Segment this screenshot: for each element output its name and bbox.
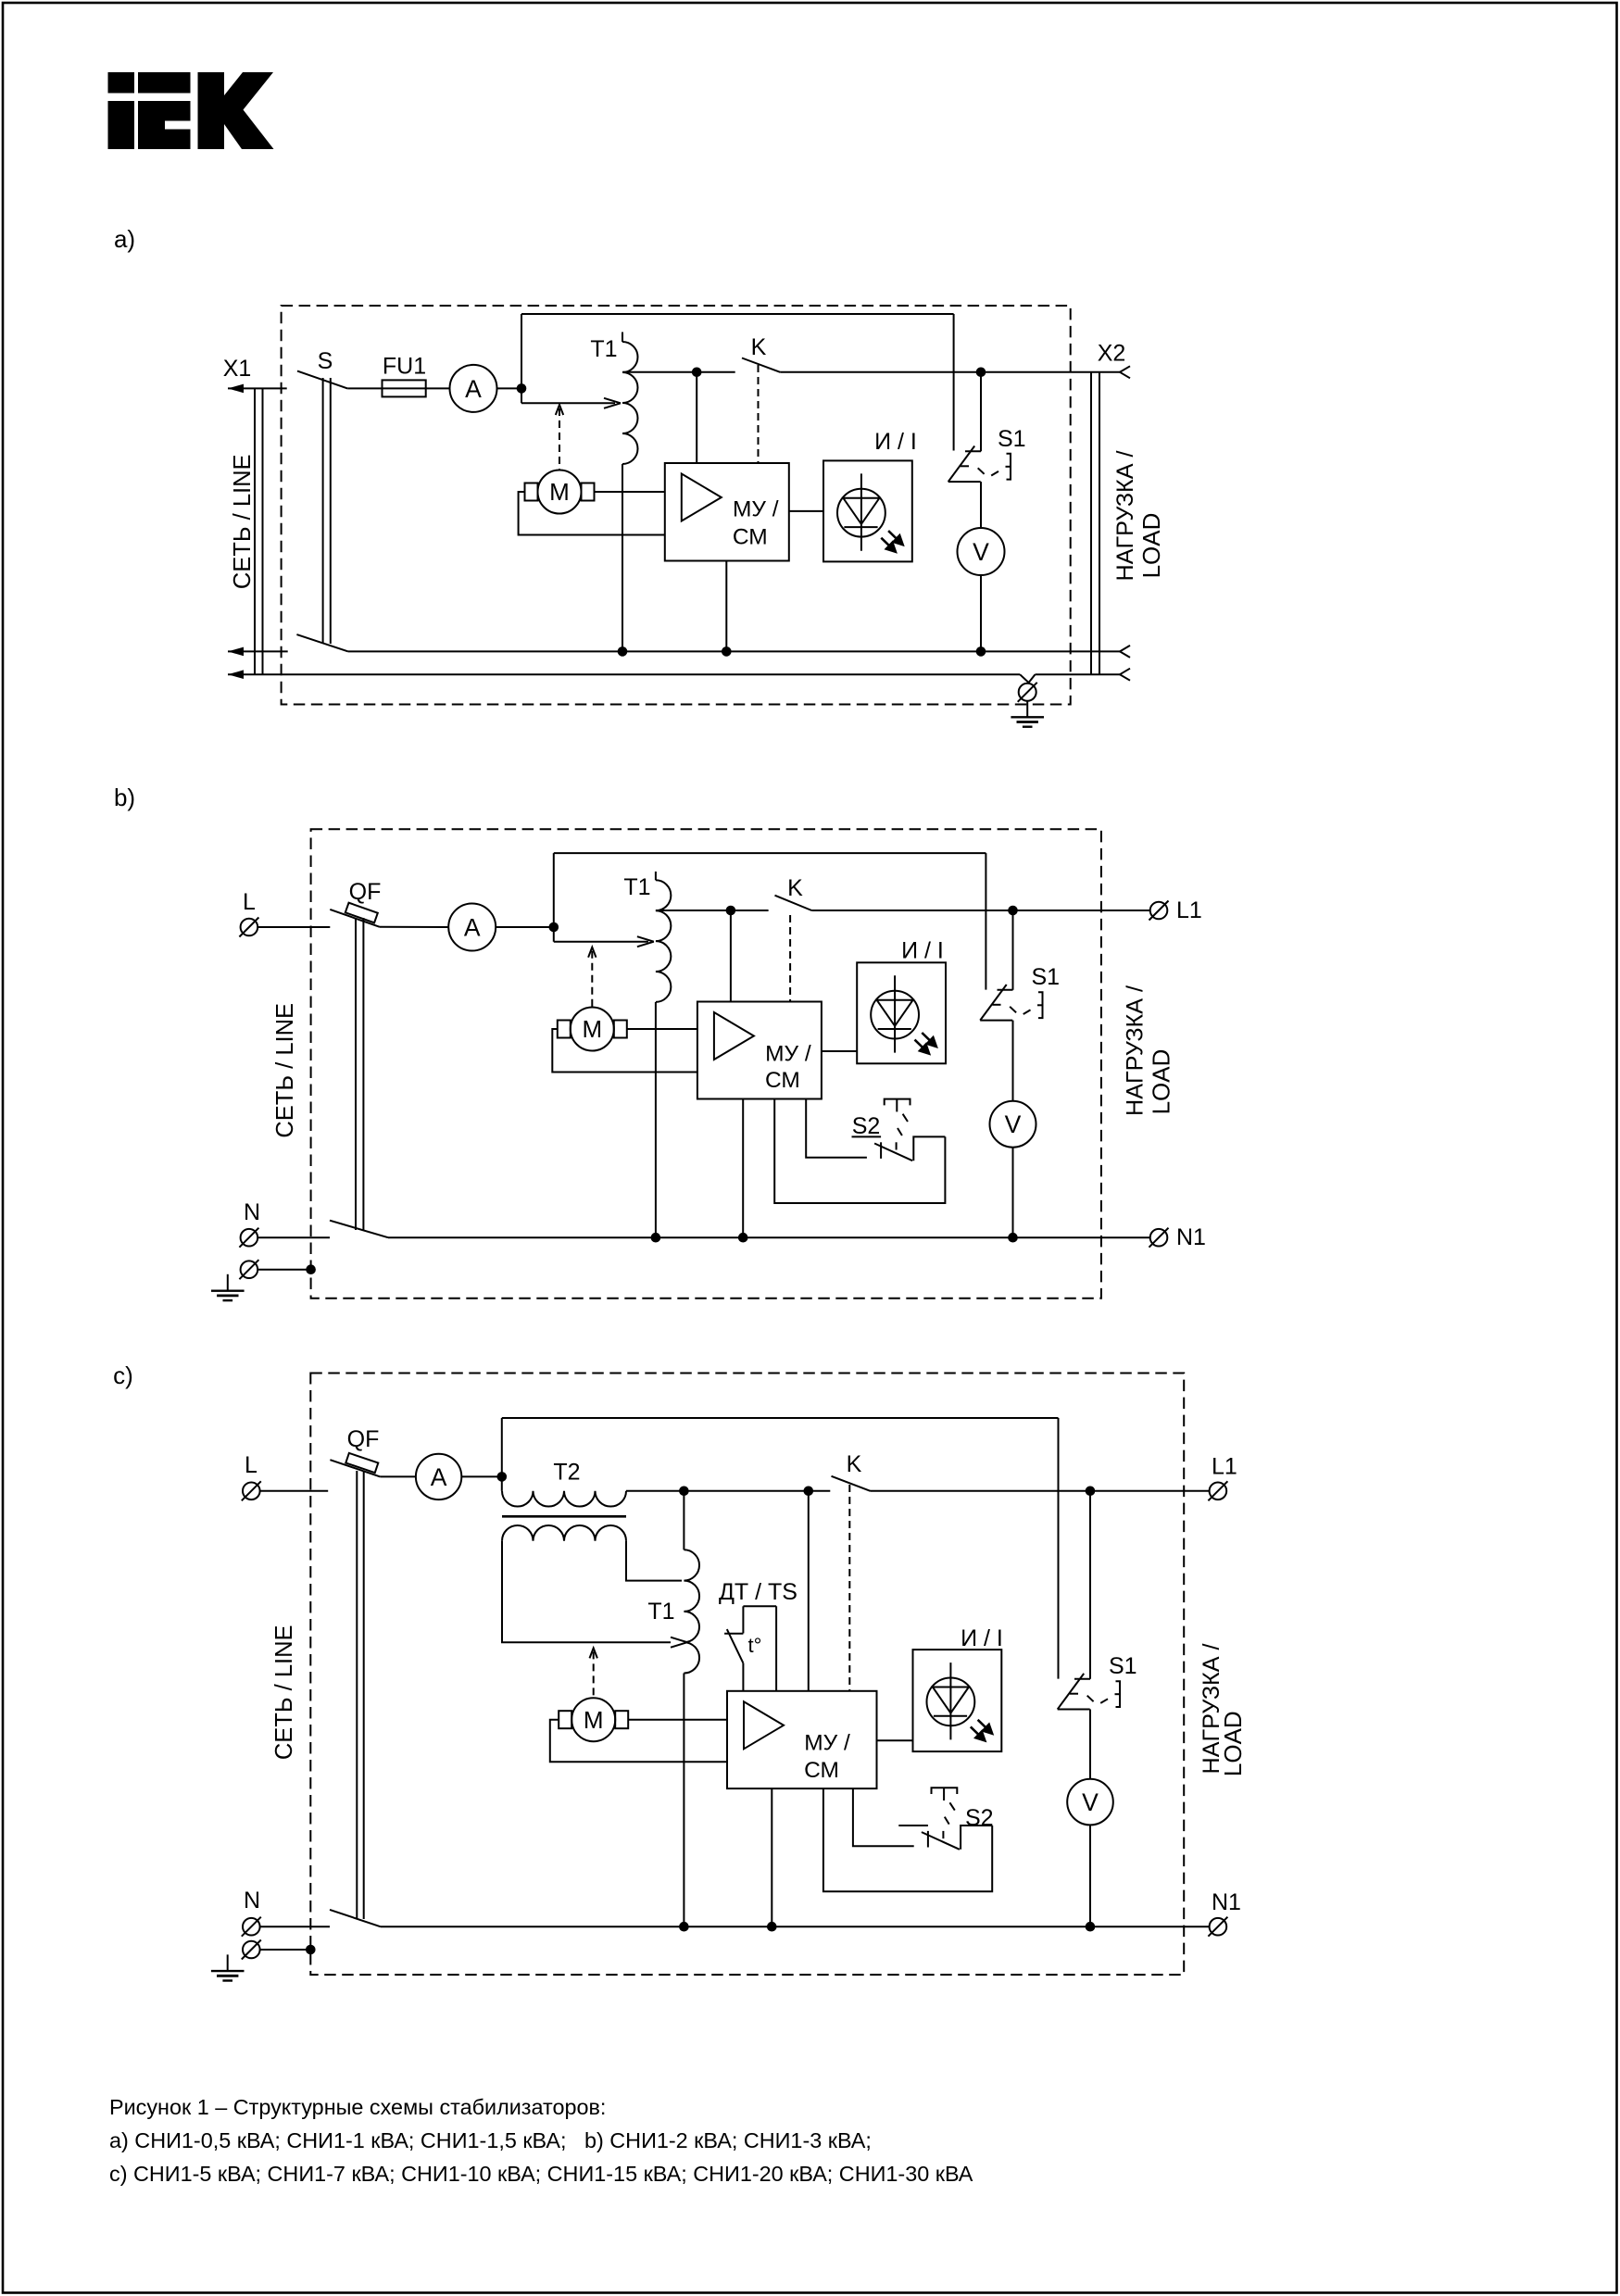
svg-text:МУ /: МУ / — [804, 1730, 850, 1755]
svg-text:X1: X1 — [223, 356, 252, 382]
svg-text:N: N — [244, 1888, 260, 1913]
svg-text:T1: T1 — [647, 1599, 674, 1625]
svg-text:S2: S2 — [965, 1805, 994, 1831]
svg-text:V: V — [973, 538, 989, 566]
svg-text:b): b) — [114, 784, 135, 811]
svg-text:СЕТЬ / LINE: СЕТЬ / LINE — [271, 1625, 297, 1760]
svg-text:L1: L1 — [1176, 897, 1202, 923]
svg-text:K: K — [751, 334, 767, 360]
svg-text:L: L — [245, 1452, 257, 1478]
svg-text:А: А — [431, 1463, 447, 1491]
svg-text:QF: QF — [349, 879, 382, 905]
svg-text:N1: N1 — [1176, 1224, 1206, 1250]
svg-text:СЕТЬ / LINE: СЕТЬ / LINE — [230, 454, 256, 589]
svg-text:М: М — [582, 1015, 602, 1043]
svg-text:c): c) — [113, 1361, 133, 1389]
svg-text:И / I: И / I — [874, 429, 917, 455]
svg-text:T1: T1 — [623, 874, 650, 900]
svg-text:СЕТЬ / LINE: СЕТЬ / LINE — [272, 1003, 298, 1138]
svg-text:И / I: И / I — [961, 1625, 1003, 1651]
svg-text:S1: S1 — [1032, 964, 1061, 990]
svg-text:K: K — [787, 875, 803, 901]
svg-text:М: М — [584, 1706, 604, 1734]
svg-text:T1: T1 — [590, 336, 617, 362]
svg-text:QF: QF — [347, 1426, 380, 1452]
svg-text:L: L — [243, 889, 256, 915]
svg-text:t°: t° — [748, 1634, 762, 1657]
svg-text:СМ: СМ — [733, 525, 768, 550]
svg-text:А: А — [464, 913, 481, 941]
svg-text:S1: S1 — [998, 426, 1026, 452]
svg-text:М: М — [549, 478, 570, 506]
svg-text:НАГРУЗКА /: НАГРУЗКА / — [1112, 450, 1138, 581]
svg-text:А: А — [465, 375, 482, 403]
svg-text:L1: L1 — [1212, 1454, 1237, 1480]
svg-text:LOAD: LOAD — [1137, 513, 1165, 579]
svg-text:СМ: СМ — [804, 1758, 839, 1783]
svg-text:СМ: СМ — [765, 1068, 800, 1093]
svg-text:S2: S2 — [852, 1113, 881, 1139]
svg-text:МУ /: МУ / — [733, 497, 779, 522]
svg-text:X2: X2 — [1098, 340, 1126, 366]
svg-text:S: S — [318, 348, 333, 374]
svg-text:НАГРУЗКА /: НАГРУЗКА / — [1123, 985, 1149, 1116]
svg-text:ДТ / TS: ДТ / TS — [719, 1579, 797, 1605]
svg-text:c) СНИ1-5 кВА; СНИ1-7 кВА; СНИ: c) СНИ1-5 кВА; СНИ1-7 кВА; СНИ1-10 кВА; … — [109, 2162, 973, 2186]
svg-text:LOAD: LOAD — [1147, 1049, 1174, 1115]
svg-text:K: K — [847, 1451, 862, 1477]
svg-text:И / I: И / I — [901, 938, 944, 964]
svg-text:N: N — [244, 1199, 260, 1225]
svg-text:V: V — [1005, 1110, 1022, 1138]
svg-text:a): a) — [114, 225, 135, 253]
svg-text:LOAD: LOAD — [1219, 1711, 1247, 1776]
svg-text:T2: T2 — [553, 1460, 580, 1486]
svg-text:FU1: FU1 — [383, 354, 426, 380]
svg-text:N1: N1 — [1212, 1889, 1241, 1915]
svg-text:Рисунок 1 – Структурные схемы: Рисунок 1 – Структурные схемы стабилизат… — [109, 2095, 606, 2119]
svg-text:МУ /: МУ / — [765, 1042, 811, 1067]
svg-text:V: V — [1082, 1788, 1099, 1816]
svg-text:S1: S1 — [1109, 1653, 1137, 1679]
svg-text:a) СНИ1-0,5 кВА; СНИ1-1 кВА; С: a) СНИ1-0,5 кВА; СНИ1-1 кВА; СНИ1-1,5 кВ… — [109, 2128, 872, 2152]
